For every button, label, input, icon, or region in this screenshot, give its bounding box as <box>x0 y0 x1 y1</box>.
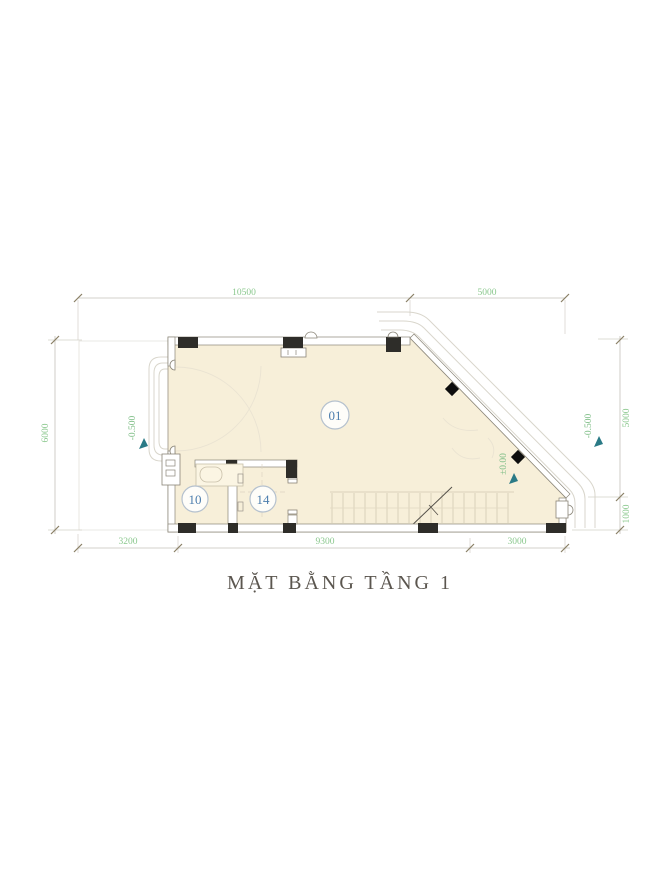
room-01-number: 01 <box>329 408 342 423</box>
room-14-number: 14 <box>257 492 271 507</box>
elevation-left-arrow-icon <box>139 438 148 449</box>
dim-right-2: 1000 <box>622 504 632 523</box>
wall-bottom <box>168 524 566 532</box>
floor-plan-canvas: 10500 5000 6000 5000 1000 3200 9300 3000… <box>0 0 650 869</box>
elevation-right-arrow-icon <box>594 436 603 447</box>
elevation-left-label: -0.500 <box>128 415 138 440</box>
drawing-title: MẶT BẰNG TẦNG 1 <box>227 570 453 594</box>
elevation-right-label: -0.500 <box>584 413 594 438</box>
corner-door-detail <box>556 501 573 518</box>
room-10-number: 10 <box>189 492 202 507</box>
dim-top-2: 5000 <box>478 288 497 298</box>
window-sill <box>281 348 306 357</box>
dim-bottom-1: 3200 <box>119 537 138 547</box>
sink-counter <box>196 464 243 486</box>
dim-bottom-3: 3000 <box>508 537 527 547</box>
dim-left-1: 6000 <box>41 423 51 442</box>
toilet-fixture <box>162 454 180 485</box>
wall-lift-right-lower <box>288 515 297 524</box>
floor-plan-page: 10500 5000 6000 5000 1000 3200 9300 3000… <box>0 0 650 869</box>
dim-right-1: 5000 <box>622 408 632 427</box>
elevation-center-label: ±0.00 <box>499 453 509 475</box>
dim-top-1: 10500 <box>232 288 256 298</box>
dim-bottom-2: 9300 <box>316 537 335 547</box>
